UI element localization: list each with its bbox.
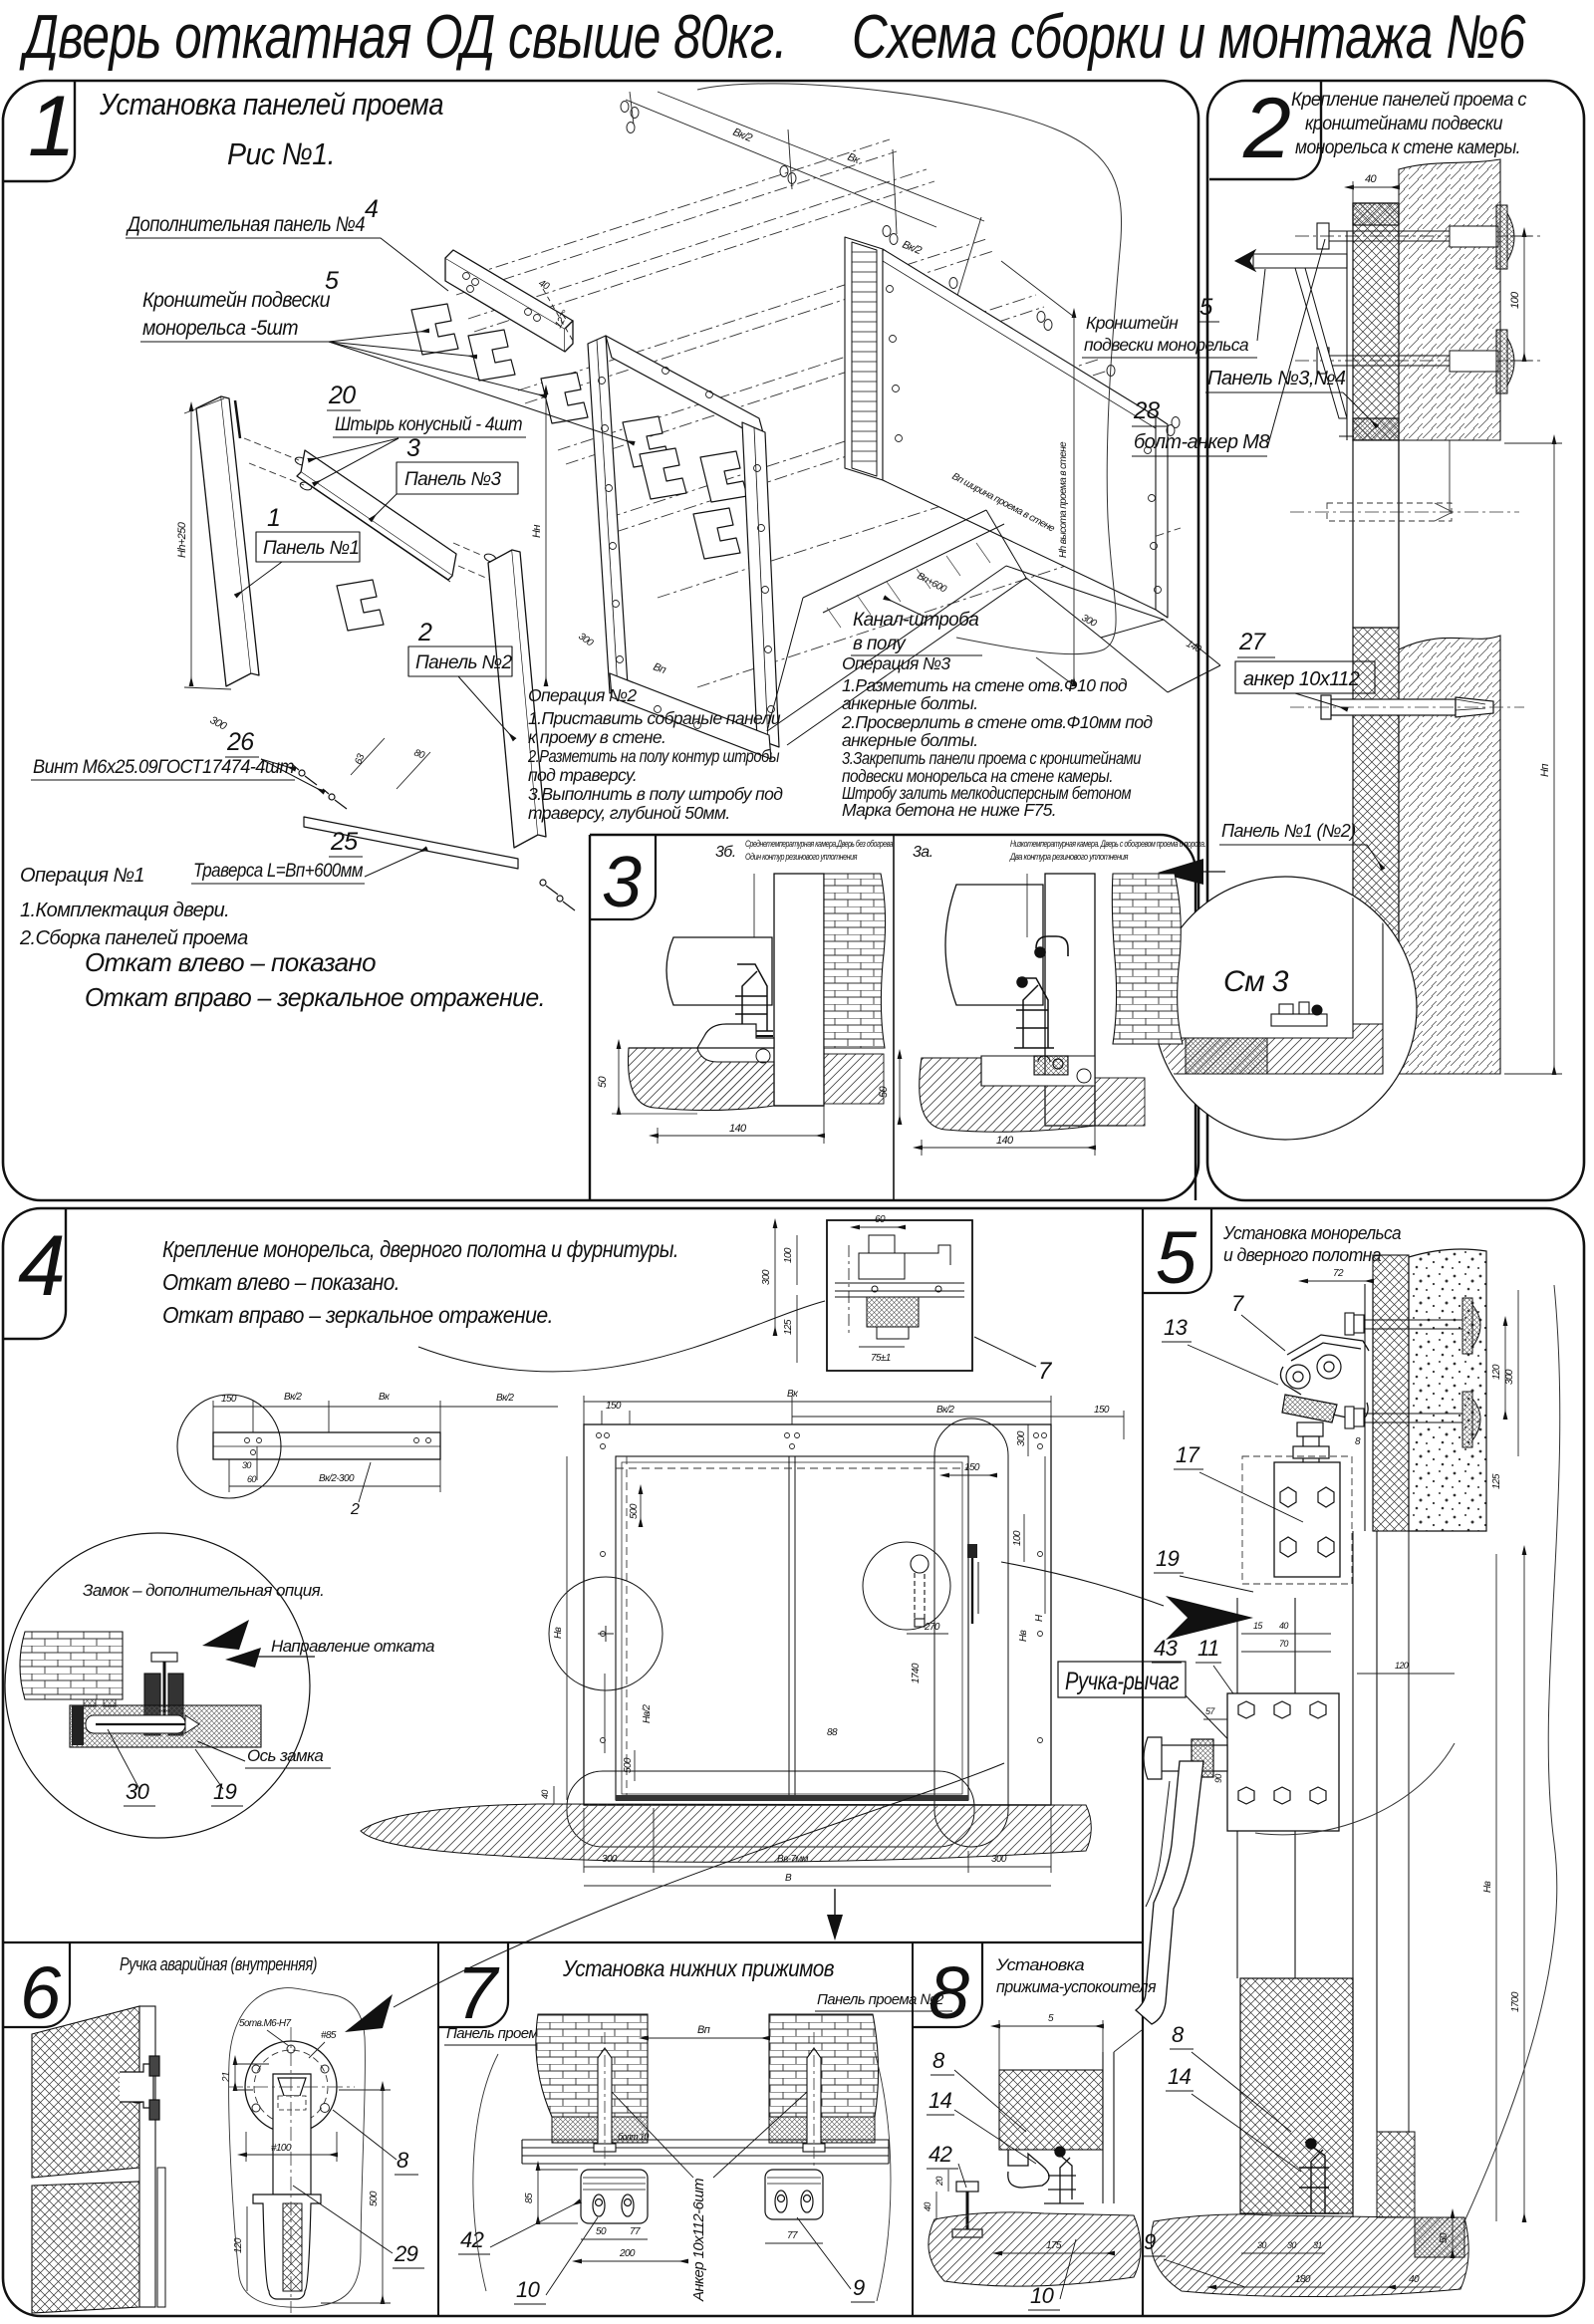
svg-text:и дверного полотна: и дверного полотна	[1223, 1245, 1382, 1265]
svg-text:5отв.М6-Н7: 5отв.М6-Н7	[239, 2018, 291, 2029]
svg-text:300: 300	[1016, 1430, 1027, 1446]
svg-text:анкер 10х112: анкер 10х112	[1243, 668, 1360, 690]
svg-text:Вк/2: Вк/2	[284, 1392, 302, 1403]
svg-text:3: 3	[602, 843, 642, 922]
svg-text:60: 60	[247, 1474, 256, 1484]
svg-text:100: 100	[783, 1247, 794, 1263]
svg-text:40: 40	[1409, 2274, 1420, 2285]
svg-text:30: 30	[1257, 2240, 1266, 2250]
svg-text:5: 5	[1156, 1216, 1197, 1299]
svg-text:Рис №1.: Рис №1.	[227, 136, 335, 171]
svg-text:20: 20	[934, 2177, 944, 2187]
svg-text:150: 150	[606, 1401, 622, 1412]
svg-text:120: 120	[1491, 1364, 1502, 1380]
svg-text:Один контур резинового уплотне: Один контур резинового уплотнения	[745, 852, 858, 862]
svg-text:19: 19	[213, 1779, 237, 1804]
svg-text:Нв: Нв	[1482, 1881, 1493, 1893]
svg-text:анкерные болты.: анкерные болты.	[842, 693, 978, 713]
svg-text:Винт М6х25.09ГОСТ17474-4шт: Винт М6х25.09ГОСТ17474-4шт	[33, 757, 294, 778]
svg-text:анкерные болты.: анкерные болты.	[842, 730, 978, 750]
svg-text:Марка бетона не ниже F75.: Марка бетона не ниже F75.	[842, 800, 1056, 820]
svg-text:Вк/2-300: Вк/2-300	[319, 1473, 355, 1484]
svg-text:300: 300	[602, 1854, 618, 1865]
svg-text:500: 500	[629, 1503, 640, 1519]
svg-text:болт-анкер М8: болт-анкер М8	[1134, 431, 1269, 453]
svg-text:Крепление панелей проема с: Крепление панелей проема с	[1291, 89, 1527, 111]
svg-text:Hп: Hп	[1539, 764, 1551, 777]
svg-text:300: 300	[761, 1269, 772, 1285]
svg-text:72: 72	[1333, 1268, 1344, 1279]
svg-text:270: 270	[924, 1622, 940, 1633]
svg-text:Hн: Hн	[531, 525, 543, 538]
svg-text:Откат влево – показано: Откат влево – показано	[85, 947, 376, 977]
svg-text:500: 500	[369, 2191, 380, 2206]
svg-text:1740: 1740	[911, 1663, 922, 1683]
svg-text:40: 40	[540, 1790, 550, 1799]
svg-text:Схема сборки и монтажа №6: Схема сборки и монтажа №6	[852, 3, 1526, 72]
svg-text:Кронштейн: Кронштейн	[1086, 313, 1179, 333]
svg-text:Установка панелей проема: Установка панелей проема	[99, 87, 443, 122]
svg-text:Вк/2: Вк/2	[496, 1393, 514, 1404]
svg-text:в полу: в полу	[853, 634, 907, 654]
svg-text:Дверь откатная ОД свыше 80кг.: Дверь откатная ОД свыше 80кг.	[19, 3, 787, 72]
svg-text:500: 500	[623, 1757, 634, 1773]
svg-text:30: 30	[242, 1460, 251, 1470]
svg-text:26: 26	[226, 728, 254, 756]
svg-text:Откат вправо – зеркальное отра: Откат вправо – зеркальное отражение.	[85, 982, 545, 1012]
svg-text:8: 8	[932, 2048, 945, 2073]
svg-text:50: 50	[878, 1085, 890, 1098]
svg-text:100: 100	[1509, 291, 1521, 309]
svg-text:монорельса -5шт: монорельса -5шт	[142, 317, 298, 340]
svg-text:19: 19	[1156, 1546, 1180, 1571]
svg-text:Панель №3,№4: Панель №3,№4	[1207, 368, 1346, 389]
svg-text:6: 6	[20, 1951, 62, 2034]
svg-text:Панель проема №2: Панель проема №2	[817, 1991, 944, 2008]
svg-text:2.Просверлить в стене отв.Ф10м: 2.Просверлить в стене отв.Ф10мм под	[841, 712, 1153, 732]
svg-text:120: 120	[1395, 1661, 1409, 1671]
svg-text:3.Выполнить в полу штробу под: 3.Выполнить в полу штробу под	[528, 784, 783, 804]
svg-text:Анкер 10х112-6шт: Анкер 10х112-6шт	[690, 2179, 707, 2302]
svg-text:1700: 1700	[1510, 1991, 1521, 2012]
svg-text:31: 31	[1313, 2240, 1322, 2250]
svg-text:Ось замка: Ось замка	[247, 1746, 323, 1765]
svg-text:180: 180	[1295, 2274, 1311, 2285]
svg-text:2.Сборка панелей проема: 2.Сборка панелей проема	[19, 927, 248, 949]
svg-text:3.Закрепить панели проема с кр: 3.Закрепить панели проема с кронштейнами	[842, 748, 1142, 768]
svg-text:20: 20	[328, 382, 356, 409]
svg-text:28: 28	[1133, 397, 1161, 424]
svg-text:140: 140	[729, 1123, 747, 1135]
svg-text:11: 11	[1197, 1636, 1219, 1661]
svg-text:Операция №1: Операция №1	[20, 865, 144, 887]
svg-text:Установка монорельса: Установка монорельса	[1222, 1223, 1402, 1243]
svg-text:300: 300	[1504, 1369, 1515, 1385]
svg-text:42: 42	[929, 2142, 952, 2167]
svg-text:подвески монорельса: подвески монорельса	[1084, 335, 1249, 355]
svg-text:Операция №3: Операция №3	[842, 653, 950, 673]
svg-text:Нв/2: Нв/2	[642, 1704, 653, 1723]
svg-text:7: 7	[1231, 1291, 1244, 1316]
svg-text:5: 5	[325, 267, 339, 295]
svg-text:Операция №2: Операция №2	[528, 685, 637, 705]
svg-text:Два контура резинового уплотне: Два контура резинового уплотнения	[1009, 852, 1129, 862]
svg-text:140: 140	[996, 1135, 1014, 1147]
svg-text:траверсу, глубиной 50мм.: траверсу, глубиной 50мм.	[528, 803, 730, 823]
svg-text:2.Разметить на полу контур штр: 2.Разметить на полу контур штробы	[527, 746, 779, 766]
svg-text:Дополнительная панель №4: Дополнительная панель №4	[126, 213, 365, 236]
svg-text:4: 4	[365, 195, 378, 223]
svg-text:8: 8	[397, 2148, 409, 2173]
svg-text:См 3: См 3	[1223, 965, 1289, 998]
svg-text:2: 2	[350, 1501, 360, 1518]
svg-text:21: 21	[221, 2072, 232, 2083]
svg-text:В: В	[785, 1873, 792, 1884]
svg-text:3б.: 3б.	[715, 844, 736, 861]
svg-text:Hh+250: Hh+250	[176, 521, 188, 558]
svg-text:под траверсу.: под траверсу.	[528, 765, 637, 785]
svg-text:Траверса L=Вп+600мм: Траверса L=Вп+600мм	[193, 861, 364, 882]
svg-text:3а.: 3а.	[913, 844, 932, 861]
svg-text:Штырь конусный - 4шт: Штырь конусный - 4шт	[335, 414, 522, 435]
svg-text:40: 40	[1365, 173, 1378, 185]
svg-text:85: 85	[524, 2193, 535, 2203]
svg-text:5: 5	[1199, 294, 1213, 321]
svg-text:Нв: Нв	[553, 1627, 564, 1639]
svg-text:150: 150	[964, 1462, 980, 1473]
svg-text:27: 27	[1238, 629, 1267, 655]
svg-text:Ручка аварийная (внутренняя): Ручка аварийная (внутренняя)	[120, 1954, 317, 1974]
svg-text:8: 8	[1172, 2022, 1185, 2047]
svg-text:Вк/2: Вк/2	[936, 1405, 954, 1416]
svg-text:9: 9	[853, 2275, 865, 2300]
svg-text:1: 1	[28, 79, 75, 174]
svg-text:13: 13	[1164, 1315, 1189, 1340]
svg-text:30: 30	[126, 1779, 150, 1804]
svg-text:Кронштейн подвески: Кронштейн подвески	[142, 289, 331, 312]
svg-text:#100: #100	[271, 2143, 292, 2154]
svg-text:Панель №2: Панель №2	[415, 652, 512, 673]
svg-text:3: 3	[406, 434, 420, 462]
svg-text:Панель №1: Панель №1	[263, 538, 359, 559]
svg-text:125: 125	[783, 1319, 794, 1335]
svg-text:50: 50	[596, 2226, 607, 2237]
svg-text:14: 14	[1168, 2064, 1192, 2089]
svg-text:43: 43	[1154, 1636, 1179, 1661]
svg-text:300: 300	[991, 1854, 1007, 1865]
svg-text:1.Разметить на стене отв.Ф10 п: 1.Разметить на стене отв.Ф10 под	[842, 675, 1128, 695]
svg-text:100: 100	[1012, 1530, 1023, 1546]
svg-text:40: 40	[923, 2202, 932, 2211]
svg-text:2: 2	[417, 619, 432, 646]
svg-text:Нв: Нв	[1018, 1630, 1029, 1642]
svg-text:к проему в стене.: к проему в стене.	[528, 727, 665, 747]
svg-text:1: 1	[267, 504, 280, 532]
svg-text:Среднетемпературная камера.Две: Среднетемпературная камера.Дверь без обо…	[745, 839, 893, 849]
svg-text:10: 10	[516, 2277, 541, 2302]
svg-text:17: 17	[1176, 1442, 1200, 1467]
svg-text:4: 4	[18, 1218, 65, 1314]
svg-text:Замок – дополнительная опция.: Замок – дополнительная опция.	[83, 1581, 324, 1600]
svg-text:Панель №3: Панель №3	[404, 469, 501, 490]
svg-text:10: 10	[1030, 2283, 1055, 2308]
svg-text:Вв-7мм: Вв-7мм	[777, 1854, 809, 1865]
svg-text:Низкотемпературная камера. Две: Низкотемпературная камера. Дверь с обогр…	[1010, 839, 1205, 849]
svg-text:77: 77	[787, 2230, 798, 2241]
svg-text:70: 70	[1279, 1639, 1288, 1649]
svg-text:болт 10: болт 10	[618, 2132, 649, 2142]
svg-text:125: 125	[1491, 1473, 1502, 1489]
svg-text:90: 90	[1213, 1774, 1223, 1783]
svg-text:Крепление монорельса, дверного: Крепление монорельса, дверного полотна и…	[162, 1236, 678, 1262]
svg-text:Вп: Вп	[697, 2024, 710, 2036]
svg-text:30: 30	[1287, 2240, 1296, 2250]
svg-text:Ручка-рычаг: Ручка-рычаг	[1065, 1668, 1179, 1695]
svg-text:кронштейнами подвески: кронштейнами подвески	[1305, 113, 1503, 134]
svg-text:9: 9	[1144, 2229, 1156, 2254]
svg-text:Панель №1 (№2): Панель №1 (№2)	[1221, 821, 1356, 841]
svg-text:75±1: 75±1	[871, 1353, 891, 1364]
svg-text:Направление отката: Направление отката	[271, 1637, 434, 1656]
svg-text:2: 2	[1242, 81, 1290, 176]
svg-text:Установка: Установка	[995, 1955, 1084, 1974]
svg-text:40: 40	[1279, 1621, 1288, 1631]
svg-text:175: 175	[1046, 2240, 1062, 2251]
svg-text:120: 120	[233, 2237, 244, 2253]
svg-text:Установка нижних прижимов: Установка нижних прижимов	[562, 1955, 834, 1981]
svg-text:1.Приставить собраные панели: 1.Приставить собраные панели	[528, 708, 781, 728]
svg-text:50: 50	[1439, 2232, 1450, 2243]
svg-text:прижима-успокоителя: прижима-успокоителя	[996, 1977, 1156, 1996]
svg-text:1.Комплектация двери.: 1.Комплектация двери.	[20, 900, 229, 921]
svg-text:200: 200	[619, 2248, 636, 2259]
svg-text:Откат влево – показано.: Откат влево – показано.	[162, 1269, 399, 1295]
svg-text:Откат вправо – зеркальное отра: Откат вправо – зеркальное отражение.	[162, 1302, 553, 1328]
svg-text:60: 60	[875, 1214, 886, 1225]
svg-text:77: 77	[630, 2226, 641, 2237]
svg-text:150: 150	[221, 1394, 237, 1405]
svg-text:42: 42	[460, 2227, 484, 2252]
svg-text:монорельса к стене камеры.: монорельса к стене камеры.	[1295, 136, 1520, 158]
svg-text:150: 150	[1094, 1405, 1110, 1416]
svg-text:25: 25	[330, 828, 358, 856]
svg-text:50: 50	[597, 1075, 609, 1088]
svg-text:#85: #85	[321, 2030, 337, 2041]
svg-text:Hh высота проема в стене: Hh высота проема в стене	[1058, 441, 1069, 558]
svg-text:14: 14	[929, 2088, 952, 2113]
svg-text:88: 88	[827, 1727, 838, 1738]
svg-text:29: 29	[394, 2241, 418, 2266]
